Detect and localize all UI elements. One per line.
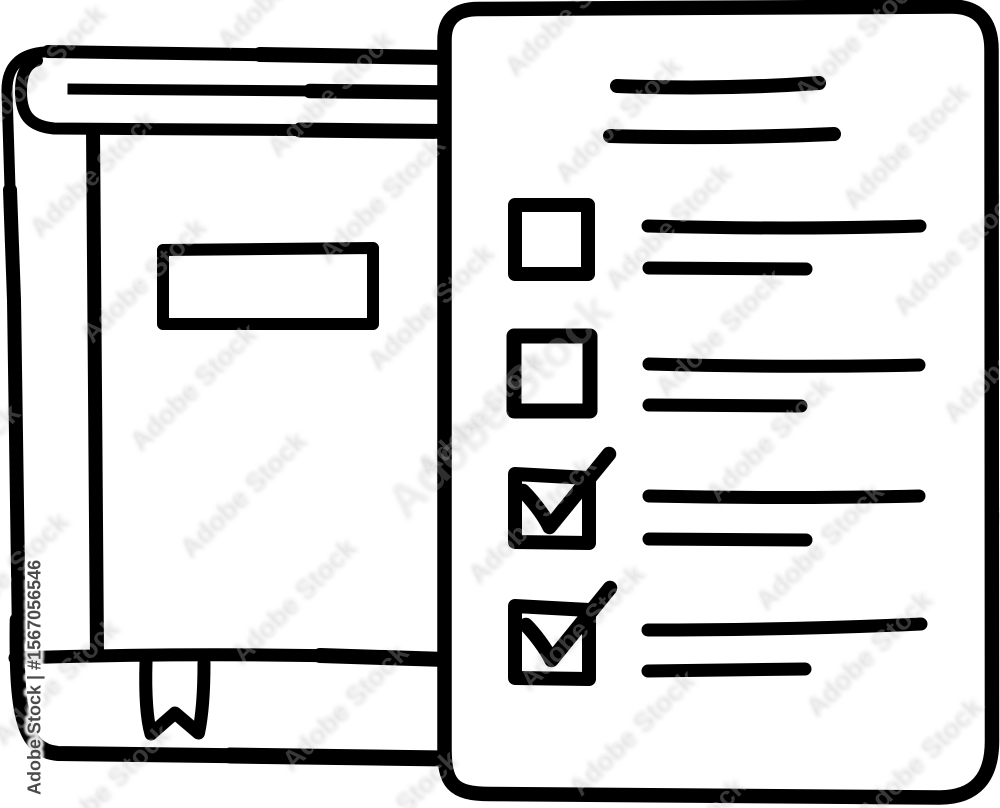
svg-text:Adobe Stock | #1567056546: Adobe Stock | #1567056546	[25, 560, 45, 795]
